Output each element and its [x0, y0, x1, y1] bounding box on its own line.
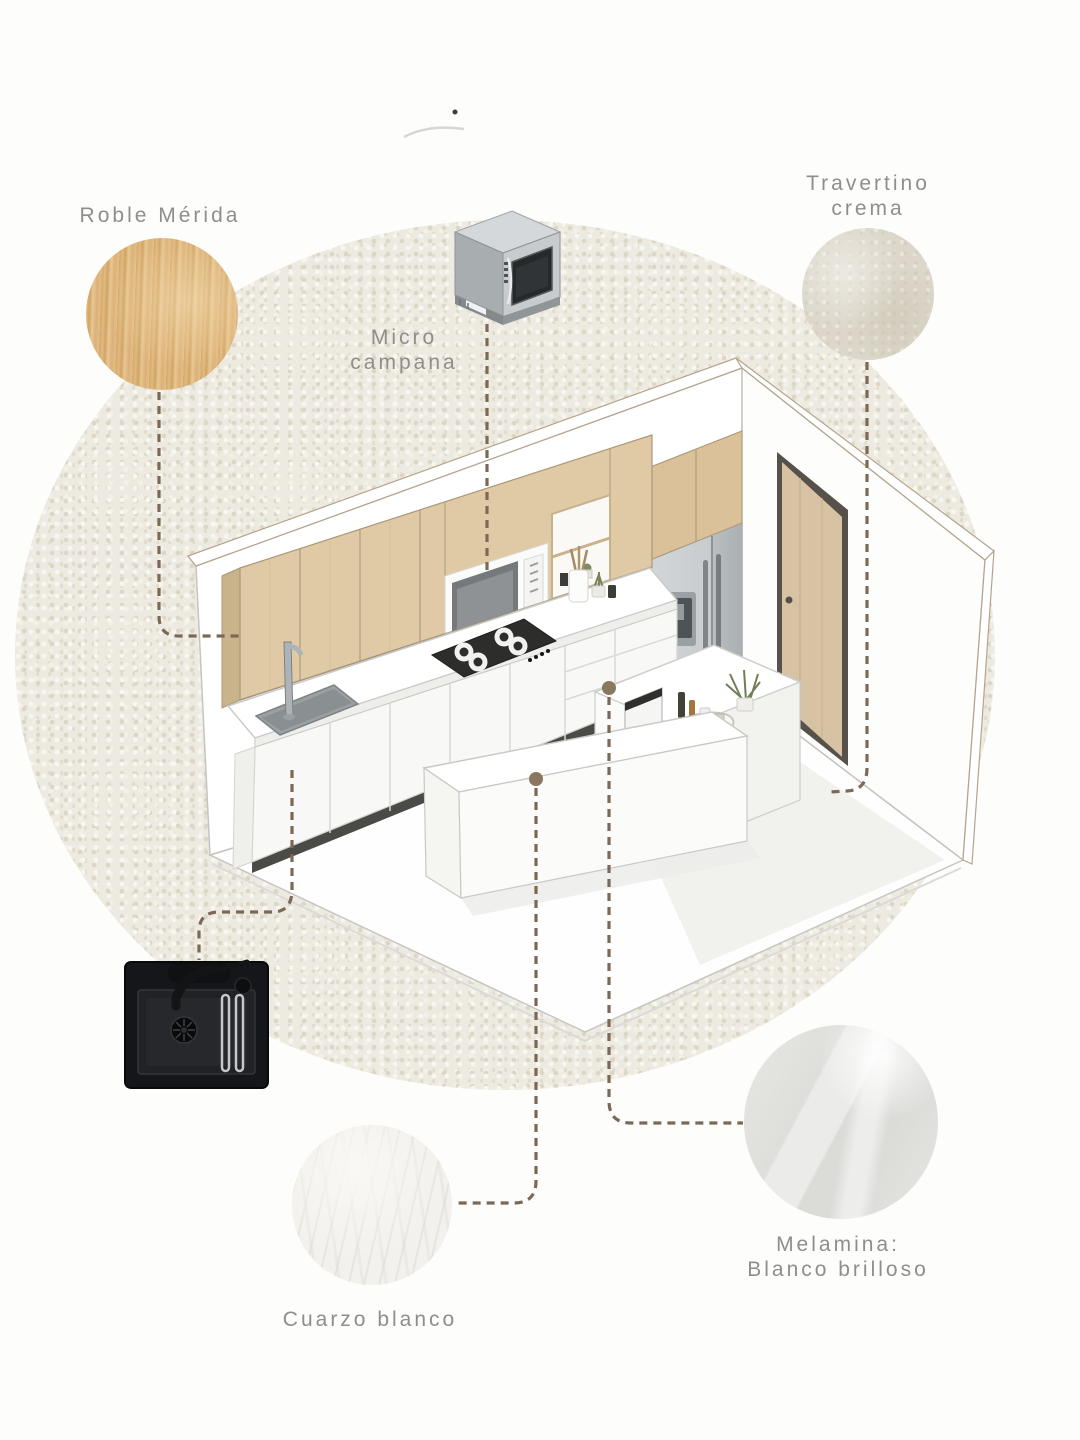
- travertino-crema-swatch: [802, 228, 934, 360]
- label-melamina-line1: Melamina:: [776, 1232, 900, 1257]
- tiny-dot-mark: [453, 110, 458, 115]
- label-micro-line2: campana: [350, 350, 457, 375]
- cuarzo-blanco-swatch: [292, 1125, 452, 1285]
- door-knob: [786, 597, 793, 604]
- moodboard-page: { "board": { "title_hint": "kitchen mate…: [0, 0, 1080, 1440]
- roble-merida-swatch: [86, 238, 238, 390]
- microwave-image: [455, 211, 560, 325]
- label-travertino-line2: crema: [831, 196, 904, 221]
- label-micro-line1: Micro: [371, 325, 437, 350]
- connector-dot-melamina: [602, 681, 616, 695]
- sink-image: [125, 962, 268, 1088]
- connector-dot-cuarzo: [529, 772, 543, 786]
- label-roble-merida: Roble Mérida: [80, 203, 241, 228]
- label-travertino-line1: Travertino: [806, 171, 930, 196]
- label-cuarzo-blanco: Cuarzo blanco: [283, 1307, 457, 1332]
- label-melamina-line2: Blanco brilloso: [747, 1257, 929, 1282]
- melamina-swatch: [744, 1025, 938, 1219]
- tiny-swoosh-mark: [404, 128, 464, 137]
